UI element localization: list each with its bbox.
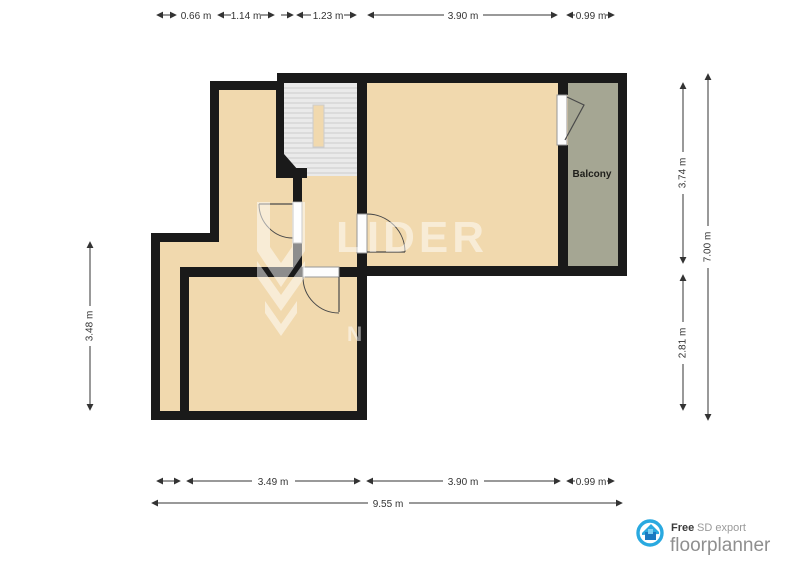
dim-right-1: 2.81 m (678, 275, 689, 410)
dim-top-3: 3.90 m (368, 11, 557, 22)
watermark-letter-text: N (347, 323, 362, 346)
dim-top-4: 0.99 m (567, 11, 614, 22)
dim-left: 3.48 m (85, 242, 96, 410)
svg-text:0.99 m: 0.99 m (576, 477, 607, 488)
svg-text:3.90 m: 3.90 m (448, 11, 479, 22)
svg-text:1.23 m: 1.23 m (313, 11, 344, 22)
svg-text:3.48 m: 3.48 m (85, 311, 96, 342)
logo-sd-export-text: SD export (697, 522, 746, 534)
floorplan-svg: LIDER N Balcony 0.66 m 1.14 m 1.23 m 3.9… (0, 0, 800, 566)
floorplanner-logo: Free SD export floorplanner (638, 521, 771, 556)
floorplan-canvas: LIDER N Balcony 0.66 m 1.14 m 1.23 m 3.9… (0, 0, 800, 566)
stairs (284, 83, 357, 176)
dim-bottom-outer: 9.55 m (152, 499, 622, 510)
svg-text:0.66 m: 0.66 m (181, 11, 212, 22)
svg-text:1.14 m: 1.14 m (231, 11, 262, 22)
svg-text:3.49 m: 3.49 m (258, 477, 289, 488)
svg-text:0.99 m: 0.99 m (576, 11, 607, 22)
logo-brand-text: floorplanner (670, 535, 771, 556)
dim-right-0: 3.74 m (678, 83, 689, 263)
svg-text:3.90 m: 3.90 m (448, 477, 479, 488)
dim-bottom-1: 3.90 m (367, 477, 560, 488)
dim-top-2: 1.23 m (281, 11, 356, 22)
svg-text:9.55 m: 9.55 m (373, 499, 404, 510)
svg-text:3.74 m: 3.74 m (678, 158, 689, 189)
dim-top-0: 0.66 m (157, 11, 211, 22)
svg-text:7.00 m: 7.00 m (703, 232, 714, 263)
dim-bottom-0: 3.49 m (187, 477, 360, 488)
stair-divider (313, 105, 324, 147)
svg-text:2.81 m: 2.81 m (678, 328, 689, 359)
watermark-brand-text: LIDER (336, 213, 488, 262)
dim-top-1: 1.14 m (218, 11, 274, 22)
logo-free-text: Free (671, 522, 694, 534)
dim-bottom-2: 0.99 m (567, 477, 614, 488)
balcony-label: Balcony (573, 169, 612, 180)
dim-right-outer: 7.00 m (703, 74, 714, 420)
